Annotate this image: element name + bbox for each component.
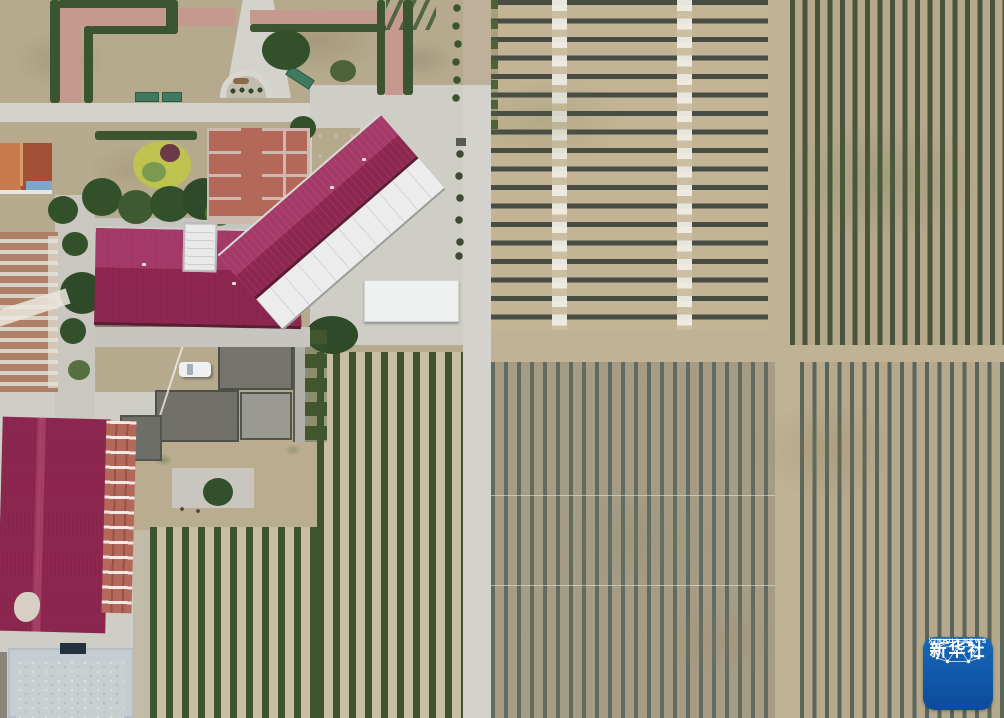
brick-path [250, 10, 386, 24]
roof-vent [142, 263, 146, 266]
hedge [250, 24, 386, 32]
orchard-block-bottom [150, 527, 317, 718]
field-edge-path [133, 530, 150, 718]
brick-courtyard-grid [207, 128, 243, 218]
edge-structure [0, 652, 7, 718]
tree-canopy [118, 190, 154, 224]
orchard-field-vertical-rows [790, 0, 1004, 345]
plaza-shrub-row [452, 146, 468, 261]
dirt-headland [491, 330, 775, 362]
brick-courtyard-walk [241, 128, 262, 218]
hedge [90, 26, 178, 34]
walled-yard [240, 392, 292, 440]
green-shrub [142, 162, 166, 182]
car-windshield [187, 364, 193, 375]
hedge [58, 0, 178, 8]
tree-canopy [60, 318, 86, 344]
trellis-field-horizontal-rows [491, 0, 770, 330]
dirt-path [768, 0, 790, 345]
roadside-trees [450, 0, 464, 106]
garden-bench [135, 92, 159, 102]
hedge [84, 26, 93, 103]
planter-shrubs [228, 86, 266, 95]
watermark-divider [931, 639, 985, 640]
walkway [95, 327, 310, 347]
yard-objects [176, 502, 216, 516]
brick-facade [101, 421, 136, 614]
orchard-block-bottom [317, 352, 477, 718]
trellis-post-column [677, 0, 692, 330]
seedling-field-left [491, 362, 775, 718]
aerial-photo: 新华社 XINHUA NEWS [0, 0, 1004, 718]
xinhua-news-watermark: 新华社 XINHUA NEWS [923, 637, 993, 710]
hedge [166, 0, 178, 30]
flat-roof-building [155, 390, 239, 442]
field-wire [491, 495, 775, 496]
tree-canopy [68, 360, 90, 380]
brick-path [58, 8, 236, 26]
roof-vent [330, 186, 334, 189]
blue-roof-texture [16, 660, 124, 718]
dirt-path [775, 362, 800, 718]
rooftop-unit [60, 643, 86, 654]
white-canopy [364, 280, 459, 322]
brick-path [58, 8, 81, 103]
vine-trellis [386, 0, 436, 30]
hedge [50, 0, 60, 103]
planter-log [233, 78, 249, 84]
roof-vent [232, 282, 236, 285]
greenhouse-edge [48, 236, 58, 388]
hedge [95, 131, 197, 140]
tree-canopy [330, 60, 356, 82]
tree-canopy [262, 30, 310, 70]
tree-canopy [82, 178, 122, 216]
tree-canopy [62, 232, 88, 256]
drain-grate [456, 138, 466, 146]
hedge [377, 0, 385, 95]
roof-vent [362, 158, 366, 161]
white-car [179, 362, 211, 377]
road-shoulder-plants [491, 0, 498, 135]
trellis-post-column [552, 0, 567, 330]
tree-canopy [48, 196, 78, 224]
field-wire [491, 585, 775, 586]
roof-ridge [20, 143, 23, 186]
blue-awning [26, 181, 52, 190]
purple-shrub [160, 144, 180, 162]
skylight-structure [182, 222, 217, 273]
garden-bench [162, 92, 182, 102]
dirt-headland [775, 345, 1004, 362]
